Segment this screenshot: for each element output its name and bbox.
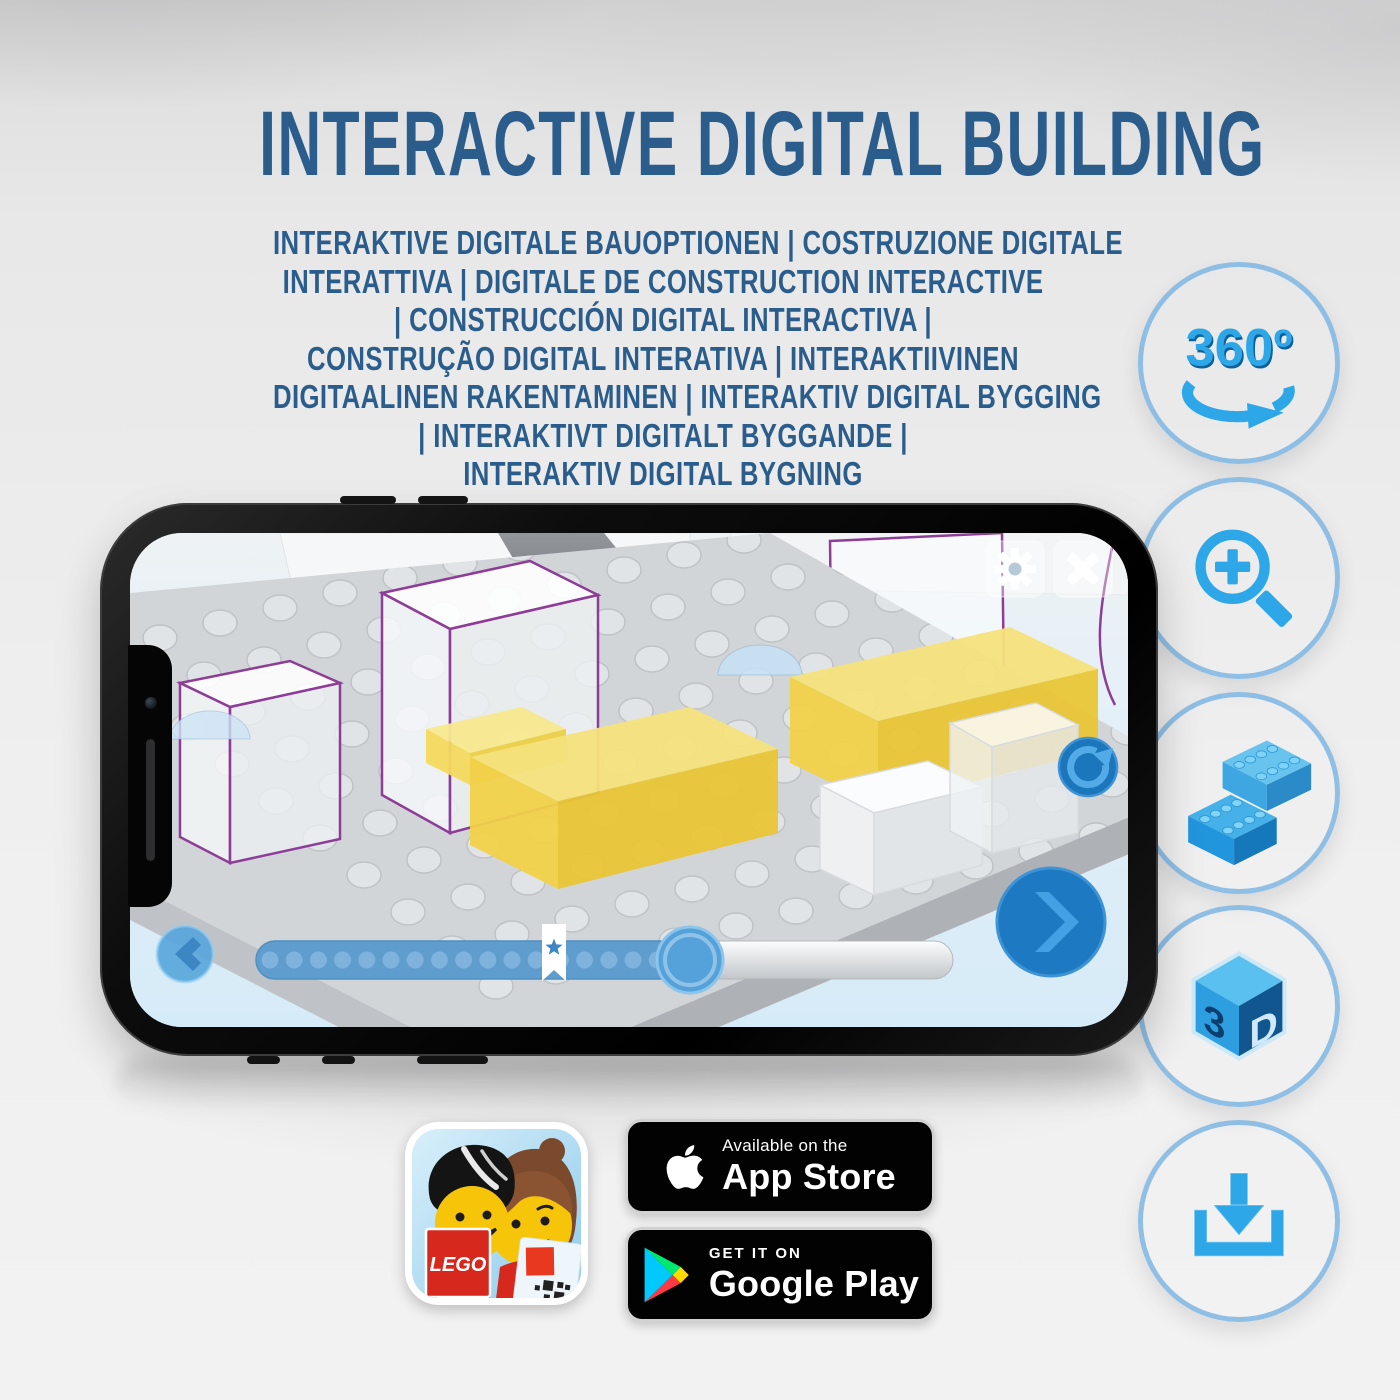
settings-button[interactable]: [986, 541, 1044, 597]
qr-card: [512, 1237, 582, 1299]
multilingual-subtitle: INTERAKTIVE DIGITALE BAUOPTIONEN | COSTR…: [273, 224, 1053, 494]
page-title-text: INTERACTIVE DIGITAL BUILDING: [259, 92, 1265, 197]
gear-icon: [994, 548, 1036, 590]
play-triangle-icon: [641, 1247, 693, 1303]
360-arrow: [1188, 384, 1290, 429]
speaker-slot: [146, 739, 155, 861]
subtitle-line: INTERAKTIV DIGITAL BYGNING: [273, 455, 1053, 494]
download-icon: [1138, 1120, 1340, 1322]
next-step-button[interactable]: [997, 868, 1105, 976]
lego-app-icon[interactable]: LEGO: [405, 1122, 588, 1305]
app-store-name: App Store: [722, 1158, 896, 1196]
app-store-tagline: Available on the: [722, 1137, 896, 1155]
subtitle-line: | INTERAKTIVT DIGITALT BYGGANDE |: [273, 417, 1053, 456]
lego-logo-text: LEGO: [430, 1254, 487, 1276]
rotate-view-button[interactable]: [1059, 738, 1117, 796]
subtitle-line: DIGITAALINEN RAKENTAMINEN | INTERAKTIV D…: [273, 378, 1053, 417]
close-button[interactable]: [1054, 541, 1112, 597]
subtitle-line: INTERAKTIVE DIGITALE BAUOPTIONEN | COSTR…: [273, 224, 1053, 263]
apple-logo-icon: [664, 1142, 706, 1192]
zoom-in-icon: [1138, 477, 1340, 679]
app-screen: [130, 533, 1128, 1027]
lego-brick-icon: [1138, 692, 1340, 894]
volume-button: [340, 496, 396, 504]
phone-reflection: [115, 1058, 1143, 1110]
poster: INTERACTIVE DIGITAL BUILDING INTERAKTIVE…: [0, 0, 1400, 1400]
power-button: [417, 1056, 488, 1064]
google-play-badge[interactable]: GET IT ON Google Play: [625, 1227, 935, 1322]
google-play-name: Google Play: [709, 1265, 919, 1303]
subtitle-line: | CONSTRUCCIÓN DIGITAL INTERACTIVA |: [273, 301, 1053, 340]
previous-step-button[interactable]: [157, 926, 213, 982]
subtitle-line: CONSTRUÇÃO DIGITAL INTERATIVA | INTERAKT…: [273, 340, 1053, 379]
app-store-badge[interactable]: Available on the App Store: [625, 1119, 935, 1214]
subtitle-line: INTERATTIVA | DIGITALE DE CONSTRUCTION I…: [273, 263, 1053, 302]
slider-knob[interactable]: [657, 927, 723, 993]
360-label: 360º: [1185, 318, 1292, 377]
3d-cube-icon: 3 D: [1138, 905, 1340, 1107]
volume-button: [418, 496, 468, 504]
google-play-tagline: GET IT ON: [709, 1246, 919, 1262]
front-camera: [145, 697, 157, 709]
360-rotation-icon: 360º 360º: [1138, 262, 1340, 464]
side-button: [247, 1056, 280, 1064]
page-title: INTERACTIVE DIGITAL BUILDING: [0, 92, 1400, 197]
phone: [100, 503, 1158, 1056]
side-button: [322, 1056, 355, 1064]
lego-logo: LEGO: [426, 1229, 490, 1297]
phone-notch: [128, 645, 172, 907]
